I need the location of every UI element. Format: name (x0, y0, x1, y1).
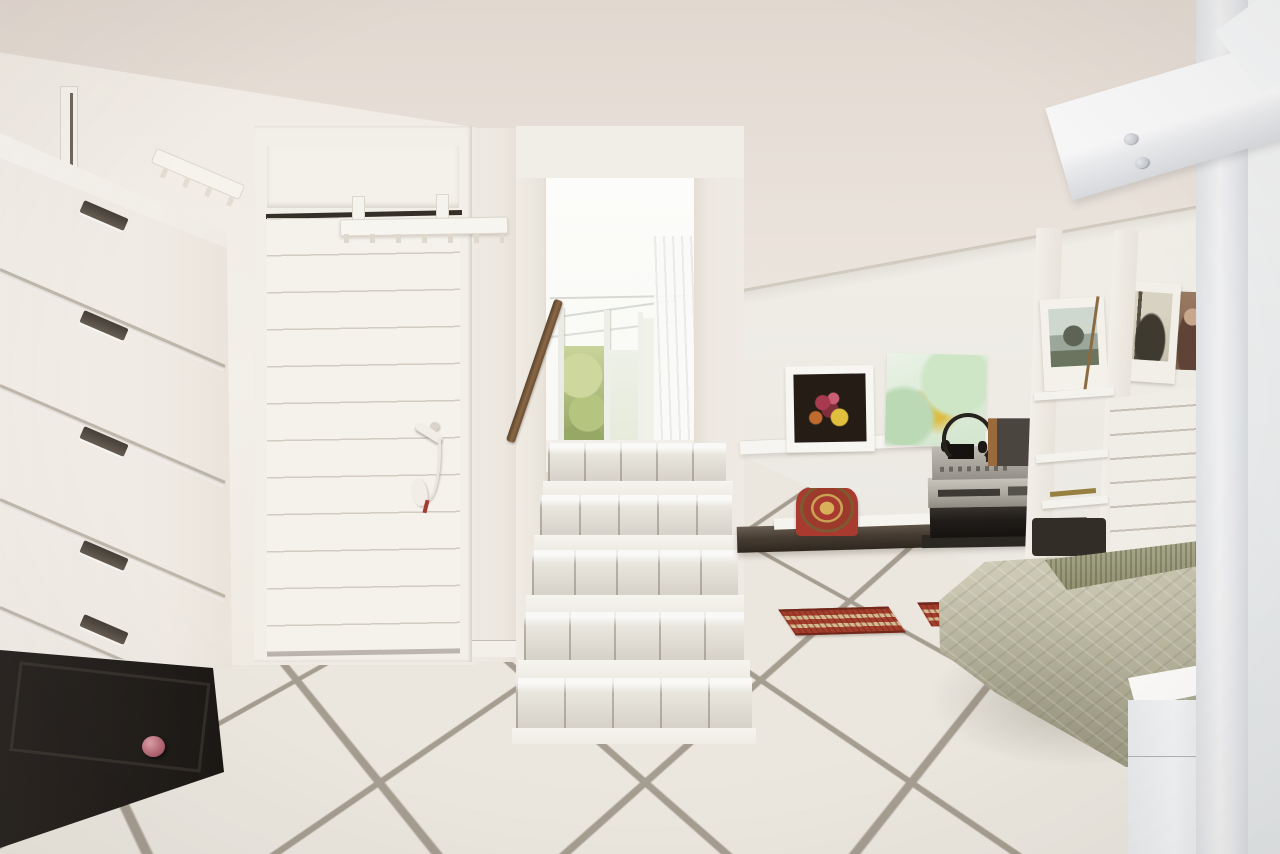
overdoor-rack-hooks (344, 234, 504, 243)
room-photo (0, 0, 1280, 854)
headphones (942, 413, 994, 465)
flower-photo-image (793, 373, 866, 442)
drawer-divider (0, 268, 226, 368)
drawer-divider (0, 384, 226, 484)
plank-headboard-panel (1110, 386, 1206, 566)
framed-flower-photo (785, 365, 874, 453)
stair-tread (543, 481, 733, 495)
stair-tread (534, 535, 738, 550)
stair-riser (532, 550, 738, 595)
stair-riser (548, 443, 726, 481)
stair-riser (516, 678, 752, 728)
tiled-stairs (510, 436, 760, 748)
sheer-curtain (654, 236, 694, 442)
beam-bolt (1122, 132, 1139, 147)
stair-riser (524, 612, 744, 660)
drawer-handle (79, 614, 128, 645)
glass-pane (610, 350, 638, 442)
drawer-divider (0, 498, 226, 598)
kilim-box (796, 488, 858, 536)
dresser (0, 0, 262, 854)
stair-tread (518, 660, 750, 678)
stair-riser (540, 495, 732, 535)
sepia-photo-mosque (1040, 296, 1109, 391)
garden-greenery (564, 346, 604, 442)
stairwell-header-wall (516, 126, 744, 184)
tape-slot (938, 489, 1000, 497)
stair-tread (526, 595, 744, 612)
pink-drawer-knob (142, 736, 165, 757)
white-door (254, 126, 516, 668)
beam-bolt (1134, 155, 1151, 170)
stair-bottom-tread (512, 728, 756, 744)
button-row (940, 466, 1010, 472)
cassette-player (928, 476, 1043, 508)
red-runner-rug (778, 607, 906, 636)
dark-objects-on-shelf (1032, 518, 1106, 556)
stairwell-opening (546, 178, 694, 442)
